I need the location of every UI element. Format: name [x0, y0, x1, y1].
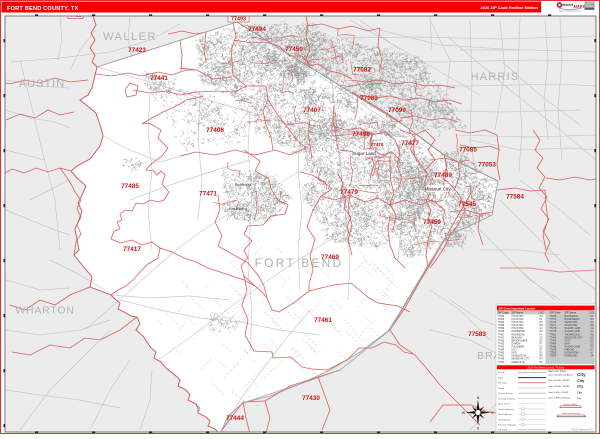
svg-text:77406: 77406: [206, 127, 224, 134]
svg-text:Missouri City: Missouri City: [424, 187, 451, 192]
svg-text:Scale in Miles: Scale in Miles: [564, 404, 578, 406]
svg-text:77469: 77469: [321, 254, 339, 261]
svg-text:Scale in Kilometers: Scale in Kilometers: [562, 412, 582, 415]
svg-text:2020 ZIP Code Redline Edition: 2020 ZIP Code Redline Edition: [481, 5, 539, 10]
svg-text:City: City: [577, 378, 585, 383]
svg-text:Sugar Land: Sugar Land: [352, 151, 376, 156]
svg-text:WHARTON: WHARTON: [15, 305, 74, 317]
svg-text:Cities and Towns: Cities and Towns: [548, 370, 568, 373]
svg-text:Rosenberg: Rosenberg: [229, 207, 247, 211]
svg-text:Cities 50,000 - 99,999: Cities 50,000 - 99,999: [548, 379, 570, 382]
svg-text:Cities 25,000 - 49,999: Cities 25,000 - 49,999: [548, 385, 570, 388]
svg-text:77498: 77498: [352, 131, 370, 138]
svg-text:77053: 77053: [478, 162, 496, 169]
svg-text:77450: 77450: [285, 46, 303, 53]
svg-text:2020 Fort Bend County, TX Map: 2020 Fort Bend County, TX Map: [527, 365, 565, 369]
svg-text:77478: 77478: [371, 142, 384, 147]
svg-text:77545: 77545: [458, 201, 476, 208]
svg-text:County Highways: County Highways: [498, 408, 514, 411]
svg-text:Toll Roads: Toll Roads: [498, 430, 508, 432]
svg-text:77082: 77082: [353, 67, 371, 74]
svg-text:Interstate Highways: Interstate Highways: [498, 424, 516, 427]
svg-text:W: W: [462, 411, 466, 415]
svg-text:77584: 77584: [506, 194, 524, 201]
svg-text:ZIP Code: ZIP Code: [498, 383, 508, 385]
svg-text:77584: 77584: [550, 355, 557, 358]
svg-text:City: City: [577, 372, 586, 377]
svg-text:Market: Market: [563, 3, 575, 7]
svg-text:HARRIS: HARRIS: [471, 71, 520, 83]
svg-text:Minor Streets: Minor Streets: [498, 403, 510, 406]
svg-text:77489: 77489: [434, 172, 452, 179]
svg-text:County: County: [498, 371, 506, 374]
svg-text:77485: 77485: [121, 183, 139, 190]
svg-text:77459: 77459: [423, 219, 441, 226]
svg-text:State: State: [498, 376, 504, 379]
svg-text:77471: 77471: [199, 191, 217, 198]
svg-text:US Highways: US Highways: [498, 419, 510, 421]
svg-text:©2020 MarketMAPS: ©2020 MarketMAPS: [571, 429, 593, 432]
svg-text:77430: 77430: [302, 395, 320, 402]
svg-text:77099: 77099: [388, 107, 406, 114]
svg-text:Cities 100,000 and Above: Cities 100,000 and Above: [548, 373, 574, 376]
svg-text:Cities 5,000 - 24,999: Cities 5,000 - 24,999: [548, 391, 569, 394]
svg-text:77085: 77085: [459, 147, 477, 154]
svg-text:City: City: [577, 385, 583, 389]
svg-text:77423: 77423: [128, 47, 146, 54]
svg-text:Maps and Mapping Solutions: Maps and Mapping Solutions: [559, 9, 581, 12]
svg-text:NEEDVILLE: NEEDVILLE: [512, 361, 526, 364]
svg-text:77493: 77493: [231, 16, 246, 22]
svg-text:Secondary Streets: Secondary Streets: [498, 397, 515, 400]
svg-text:MAPS: MAPS: [574, 4, 586, 9]
svg-text:77444: 77444: [226, 415, 244, 422]
svg-text:77083: 77083: [360, 95, 378, 102]
svg-text:Richmond: Richmond: [235, 183, 251, 187]
svg-text:77461: 77461: [498, 361, 505, 364]
svg-text:Roads: Roads: [498, 388, 504, 390]
svg-text:77583: 77583: [468, 331, 486, 338]
svg-text:USA ZIP: USA ZIP: [586, 2, 594, 5]
svg-text:WALLER: WALLER: [103, 31, 157, 43]
svg-text:PEARLAND: PEARLAND: [565, 355, 578, 358]
svg-text:FORT BEND COUNTY, TX: FORT BEND COUNTY, TX: [7, 6, 79, 12]
svg-text:77441: 77441: [150, 75, 168, 82]
svg-text:WallMaps: WallMaps: [585, 6, 593, 8]
svg-text:N: N: [477, 396, 480, 400]
svg-text:State Highways: State Highways: [498, 413, 512, 416]
svg-text:77417: 77417: [123, 246, 141, 253]
svg-text:Cities 4,999 and Below: Cities 4,999 and Below: [548, 397, 571, 400]
svg-text:Primary Streets: Primary Streets: [498, 392, 512, 395]
svg-text:77461: 77461: [314, 317, 332, 324]
svg-text:ZIP Code Important Locator: ZIP Code Important Locator: [499, 306, 537, 310]
svg-text:77407: 77407: [303, 107, 321, 114]
svg-text:77479: 77479: [340, 189, 358, 196]
svg-text:77477: 77477: [401, 140, 419, 147]
svg-text:City: City: [577, 391, 582, 394]
svg-text:AUSTIN: AUSTIN: [19, 78, 65, 90]
svg-text:77494: 77494: [248, 26, 266, 33]
